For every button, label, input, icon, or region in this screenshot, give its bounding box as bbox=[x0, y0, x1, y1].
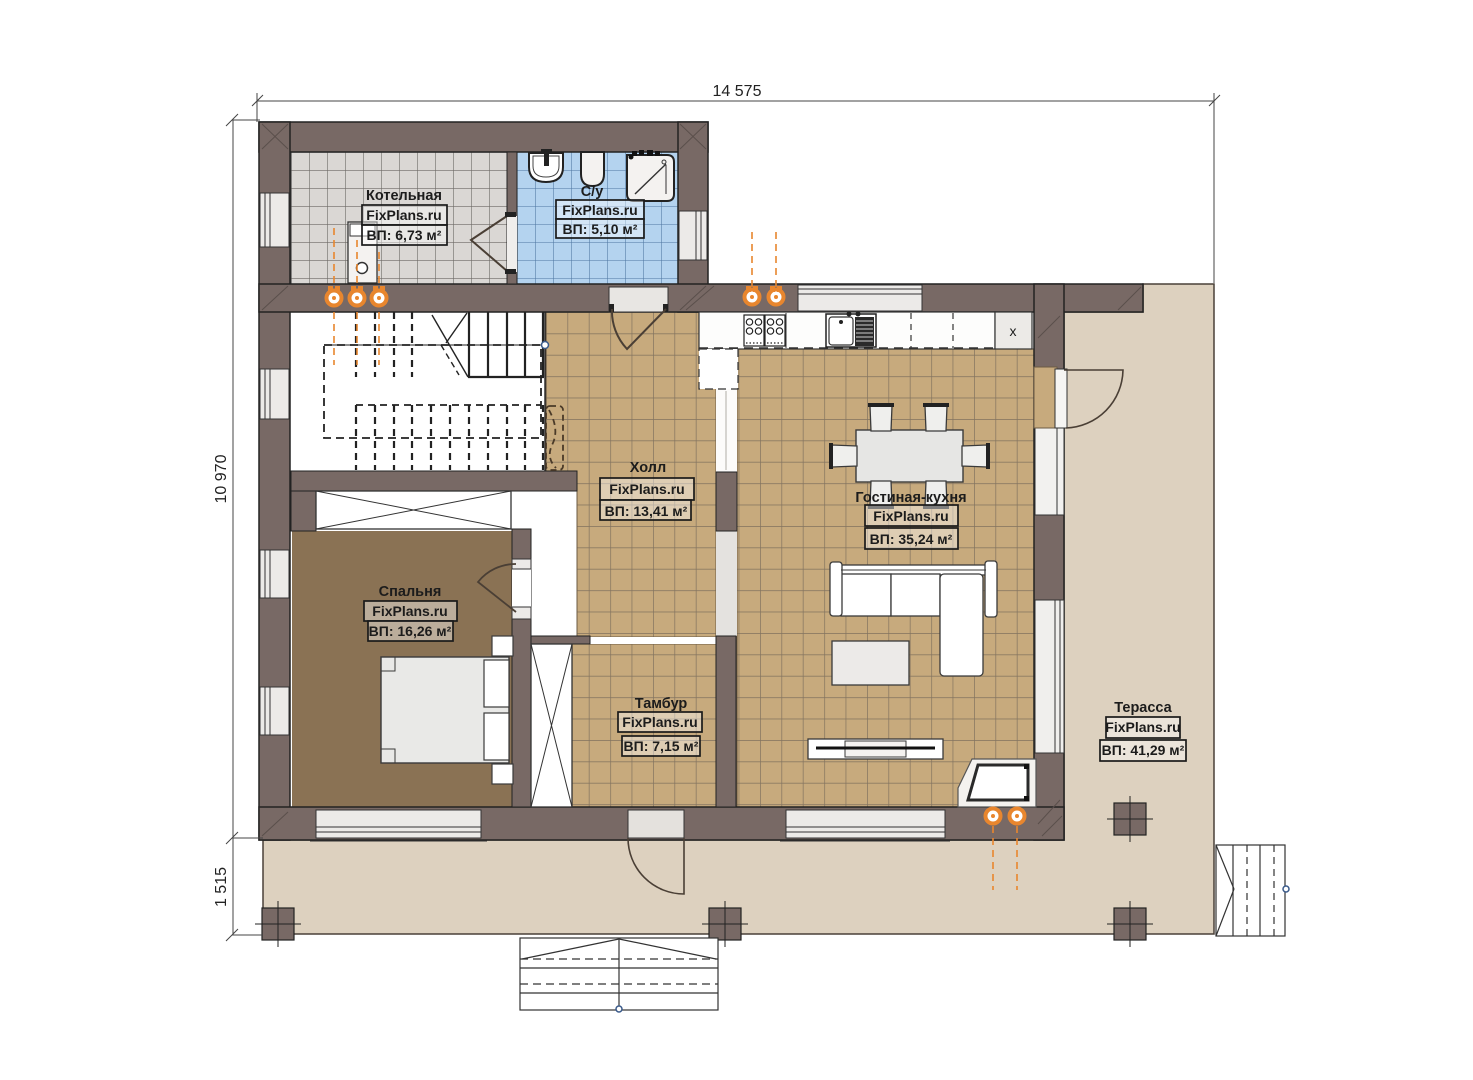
svg-text:14 575: 14 575 bbox=[713, 83, 762, 100]
svg-text:С/у: С/у bbox=[581, 184, 604, 200]
svg-text:FixPlans.ru: FixPlans.ru bbox=[873, 508, 948, 524]
svg-text:ВП: 41,29 м²: ВП: 41,29 м² bbox=[1102, 742, 1185, 758]
svg-text:ВП: 16,26 м²: ВП: 16,26 м² bbox=[369, 623, 452, 639]
svg-text:x: x bbox=[1010, 323, 1017, 339]
svg-text:Спальня: Спальня bbox=[379, 584, 442, 600]
svg-text:FixPlans.ru: FixPlans.ru bbox=[609, 481, 684, 497]
svg-text:1 515: 1 515 bbox=[213, 867, 230, 907]
svg-text:Холл: Холл bbox=[630, 460, 666, 476]
svg-text:10 970: 10 970 bbox=[213, 454, 230, 503]
svg-text:ВП: 13,41 м²: ВП: 13,41 м² bbox=[605, 503, 688, 519]
svg-text:ВП: 35,24 м²: ВП: 35,24 м² bbox=[870, 531, 953, 547]
svg-text:FixPlans.ru: FixPlans.ru bbox=[622, 714, 697, 730]
svg-text:Котельная: Котельная bbox=[366, 188, 442, 204]
svg-text:FixPlans.ru: FixPlans.ru bbox=[1105, 719, 1180, 735]
svg-text:Тамбур: Тамбур bbox=[635, 696, 688, 712]
svg-text:FixPlans.ru: FixPlans.ru bbox=[366, 207, 441, 223]
svg-text:ВП: 7,15 м²: ВП: 7,15 м² bbox=[624, 738, 699, 754]
svg-text:Терасса: Терасса bbox=[1114, 700, 1172, 716]
svg-text:ВП: 6,73 м²: ВП: 6,73 м² bbox=[367, 227, 442, 243]
svg-text:FixPlans.ru: FixPlans.ru bbox=[562, 202, 637, 218]
svg-text:Гостиная-кухня: Гостиная-кухня bbox=[855, 490, 966, 506]
svg-text:ВП: 5,10 м²: ВП: 5,10 м² bbox=[563, 221, 638, 237]
svg-text:FixPlans.ru: FixPlans.ru bbox=[372, 603, 447, 619]
